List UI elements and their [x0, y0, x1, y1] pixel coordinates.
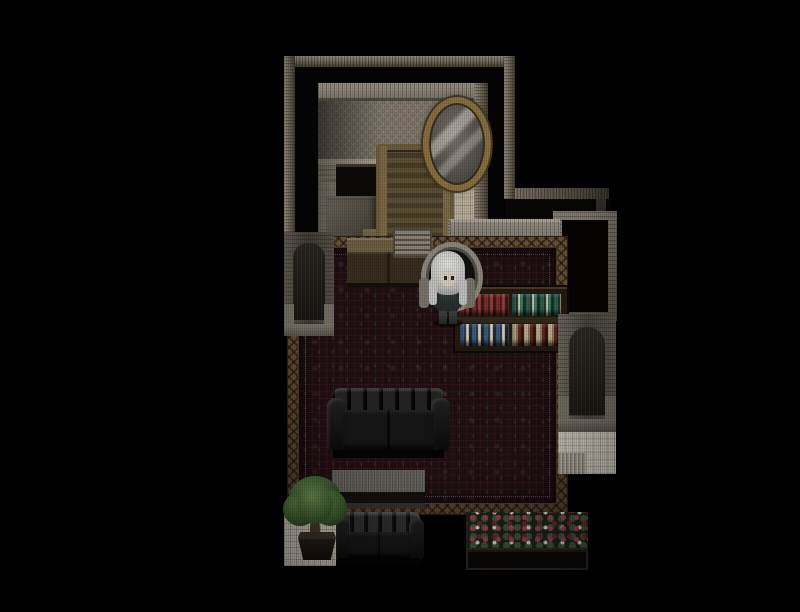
top-room-outer-trim-right	[504, 56, 515, 199]
sofa-upper	[327, 388, 450, 458]
character-leg	[449, 311, 457, 324]
armchair-arm	[419, 278, 429, 308]
sofa-base	[333, 450, 444, 458]
planter-flowers	[466, 512, 588, 550]
player-character[interactable]	[429, 249, 467, 327]
planter-box	[466, 548, 588, 570]
bookcase-row-green	[512, 294, 561, 316]
character-leg	[439, 311, 447, 324]
bookcase-row-blue	[460, 324, 509, 346]
arch-sill	[558, 419, 616, 432]
wall-mirror[interactable]	[423, 97, 491, 191]
floor-quadrant	[558, 453, 586, 474]
chair-post	[380, 146, 387, 244]
arch-sill	[284, 324, 334, 336]
top-room-outer-trim-top	[284, 56, 515, 67]
arch-opening	[569, 327, 605, 415]
potted-tree	[283, 474, 349, 562]
character-hair-lock	[459, 279, 467, 305]
character-eye	[444, 276, 447, 280]
flower-planter	[466, 512, 588, 568]
bookcase-shelf	[455, 317, 567, 323]
tree-foliage	[297, 484, 333, 524]
sofa-base	[338, 558, 420, 566]
character-hair-lock	[429, 279, 437, 305]
arched-doorway-right[interactable]	[558, 314, 616, 432]
arch-opening	[293, 243, 325, 320]
sofa-seat	[343, 410, 434, 450]
sofa-seat	[346, 532, 412, 558]
arched-alcove-left[interactable]	[284, 232, 334, 336]
table-radio	[393, 227, 432, 258]
character-shadow	[433, 319, 463, 327]
tree-pot	[298, 532, 336, 560]
bookcase-row-beige	[512, 324, 561, 346]
character-eye	[451, 276, 454, 280]
entry-checker-floor	[558, 432, 616, 474]
game-viewport[interactable]	[0, 0, 800, 612]
wing-wall-trim	[505, 188, 609, 199]
top-room-outer-trim-left	[284, 56, 295, 238]
